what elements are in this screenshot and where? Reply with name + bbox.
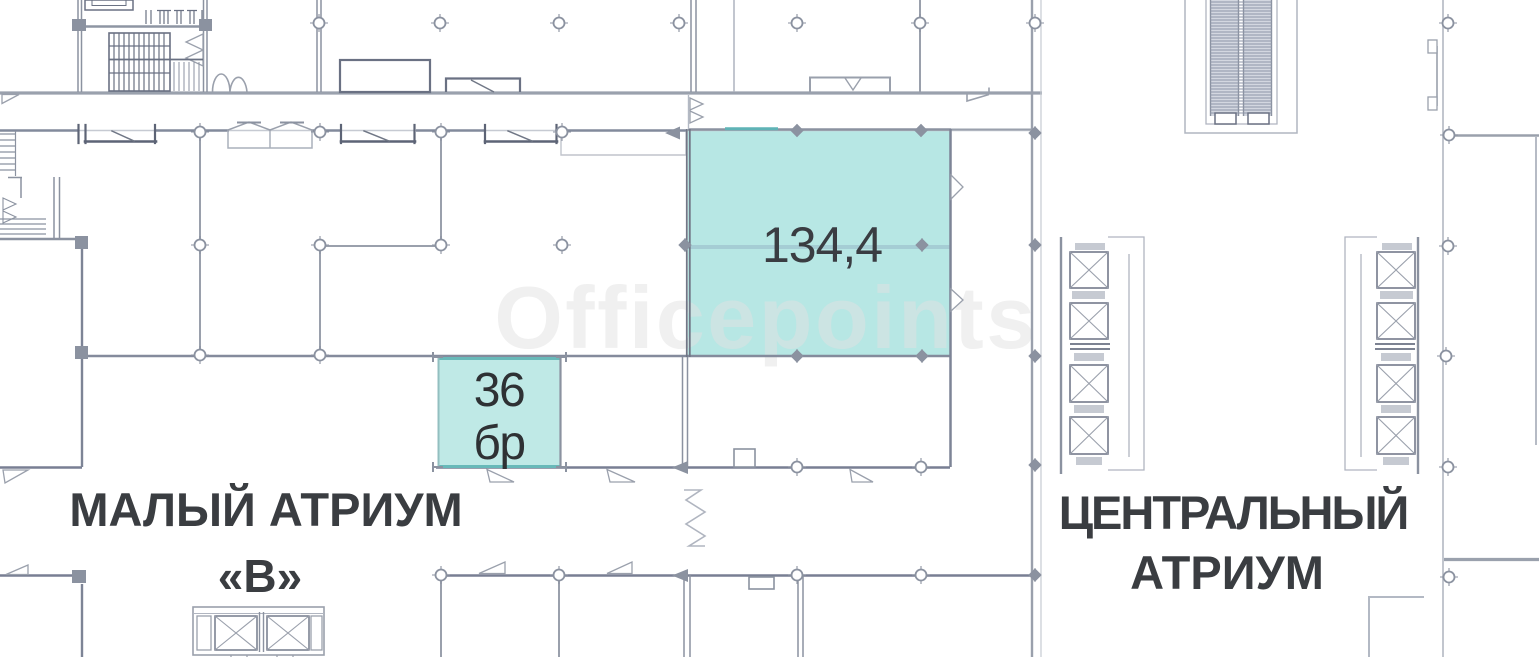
- svg-text:МАЛЫЙ АТРИУМ: МАЛЫЙ АТРИУМ: [69, 483, 462, 536]
- svg-text:ЦЕНТРАЛЬНЫЙ: ЦЕНТРАЛЬНЫЙ: [1059, 486, 1408, 539]
- svg-text:бр: бр: [473, 417, 524, 470]
- svg-text:«В»: «В»: [218, 550, 302, 602]
- svg-text:АТРИУМ: АТРИУМ: [1130, 546, 1324, 599]
- svg-text:36: 36: [474, 364, 524, 417]
- svg-text:134,4: 134,4: [762, 217, 882, 273]
- svg-text:Officepoints: Officepoints: [494, 268, 1037, 367]
